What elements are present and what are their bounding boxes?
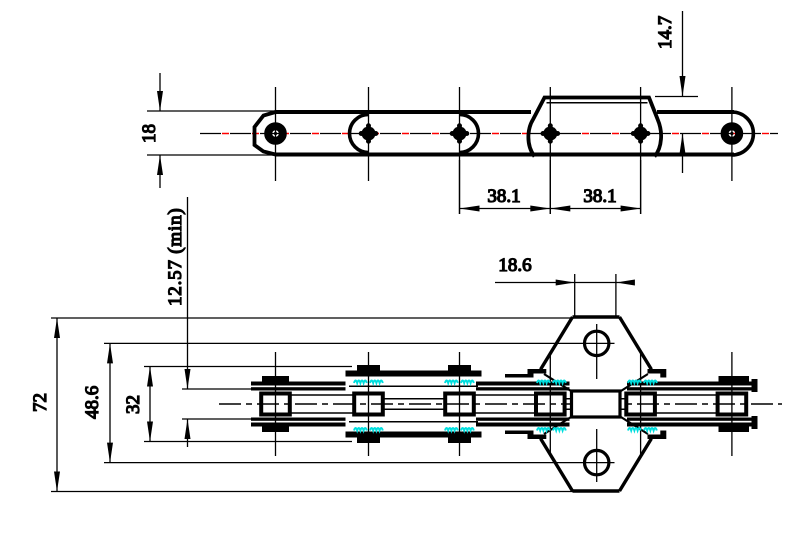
svg-text:18: 18 <box>139 124 160 143</box>
svg-text:12.57 (min): 12.57 (min) <box>165 207 186 306</box>
svg-text:32: 32 <box>123 395 144 414</box>
svg-text:72: 72 <box>30 393 51 412</box>
svg-text:48.6: 48.6 <box>82 386 103 419</box>
svg-text:38.1: 38.1 <box>487 186 520 207</box>
svg-text:18.6: 18.6 <box>498 255 531 276</box>
svg-text:38.1: 38.1 <box>583 186 616 207</box>
svg-text:14.7: 14.7 <box>655 16 676 49</box>
